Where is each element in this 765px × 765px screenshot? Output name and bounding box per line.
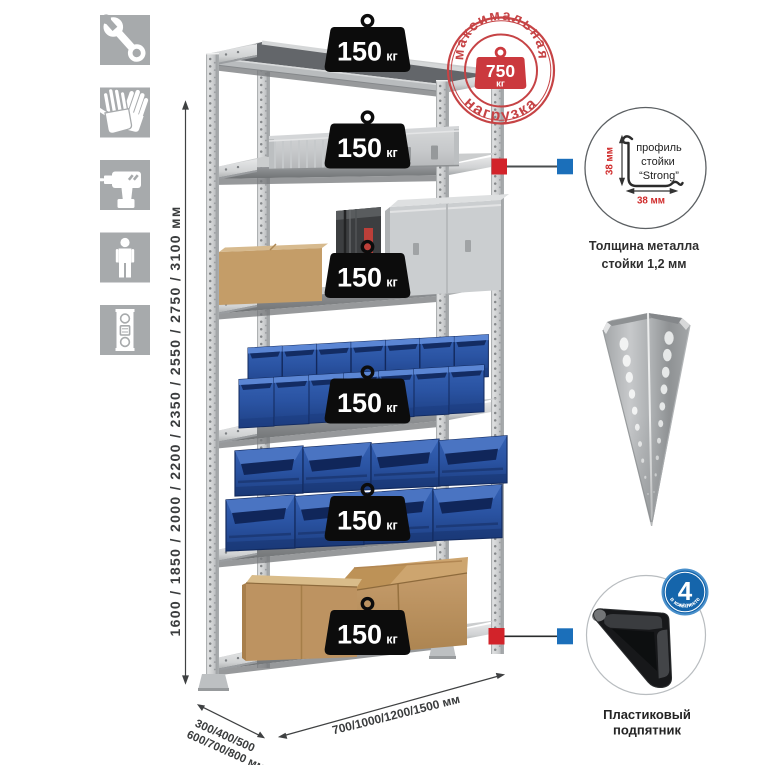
svg-text:кг: кг: [386, 276, 397, 290]
svg-text:кг: кг: [496, 79, 505, 90]
svg-text:150: 150: [337, 37, 382, 67]
svg-text:150: 150: [337, 133, 382, 163]
svg-text:стойки: стойки: [641, 156, 675, 168]
svg-text:кг: кг: [386, 50, 397, 64]
svg-text:150: 150: [337, 263, 382, 293]
svg-text:профиль: профиль: [636, 142, 682, 154]
svg-text:150: 150: [337, 620, 382, 650]
svg-text:кг: кг: [386, 633, 397, 647]
svg-text:кг: кг: [386, 146, 397, 160]
svg-text:38 мм: 38 мм: [605, 147, 616, 175]
svg-text:1600 / 1850 / 2000 / 2200 / 23: 1600 / 1850 / 2000 / 2200 / 2350 / 2550 …: [167, 205, 183, 636]
svg-text:38 мм: 38 мм: [637, 196, 665, 207]
svg-text:150: 150: [337, 506, 382, 536]
svg-text:подпятник: подпятник: [613, 723, 682, 738]
svg-text:Толщина металла: Толщина металла: [589, 239, 700, 253]
svg-text:150: 150: [337, 388, 382, 418]
svg-text:кг: кг: [386, 401, 397, 415]
svg-text:Пластиковый: Пластиковый: [603, 707, 691, 722]
svg-text:кг: кг: [386, 519, 397, 533]
svg-text:стойки 1,2 мм: стойки 1,2 мм: [602, 257, 687, 271]
svg-text:“Strong”: “Strong”: [639, 170, 679, 182]
